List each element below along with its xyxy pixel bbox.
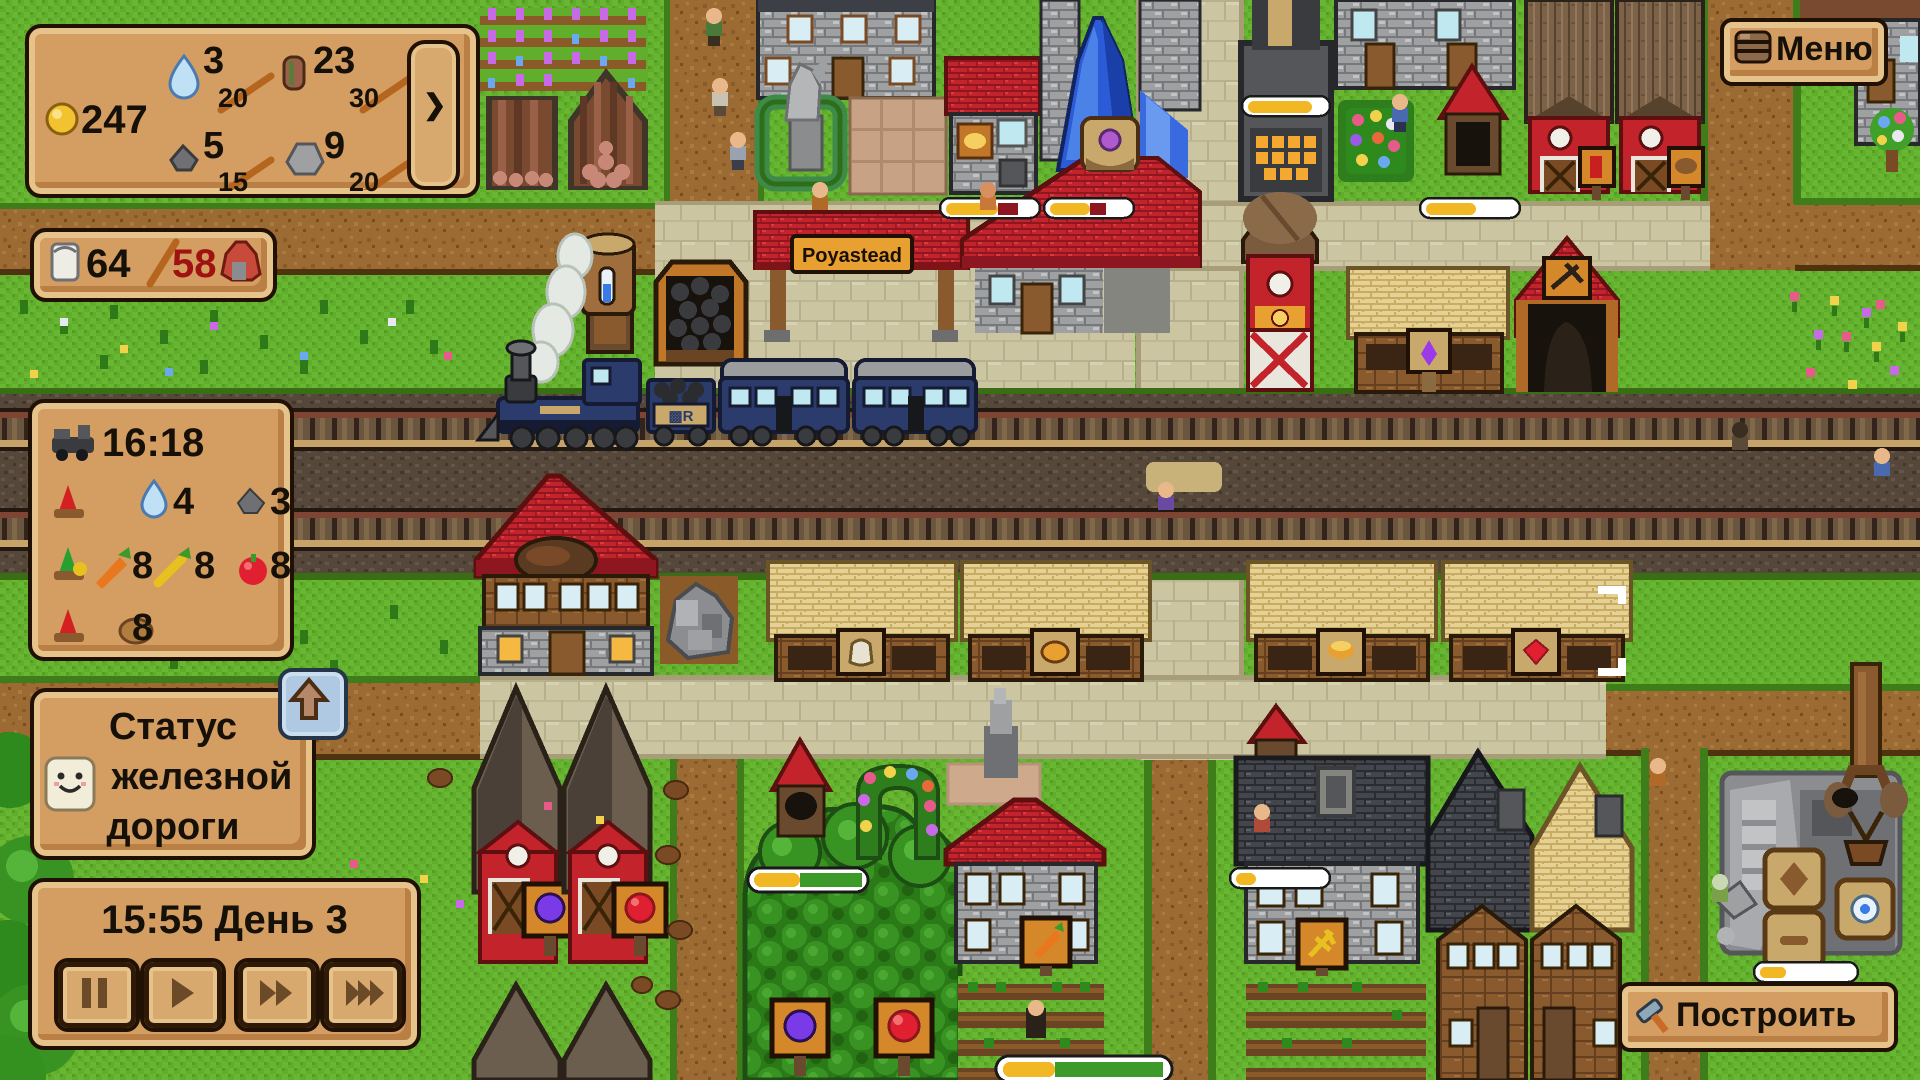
svg-text:▩R: ▩R: [668, 408, 693, 425]
svg-text:Poyastead: Poyastead: [802, 245, 902, 267]
